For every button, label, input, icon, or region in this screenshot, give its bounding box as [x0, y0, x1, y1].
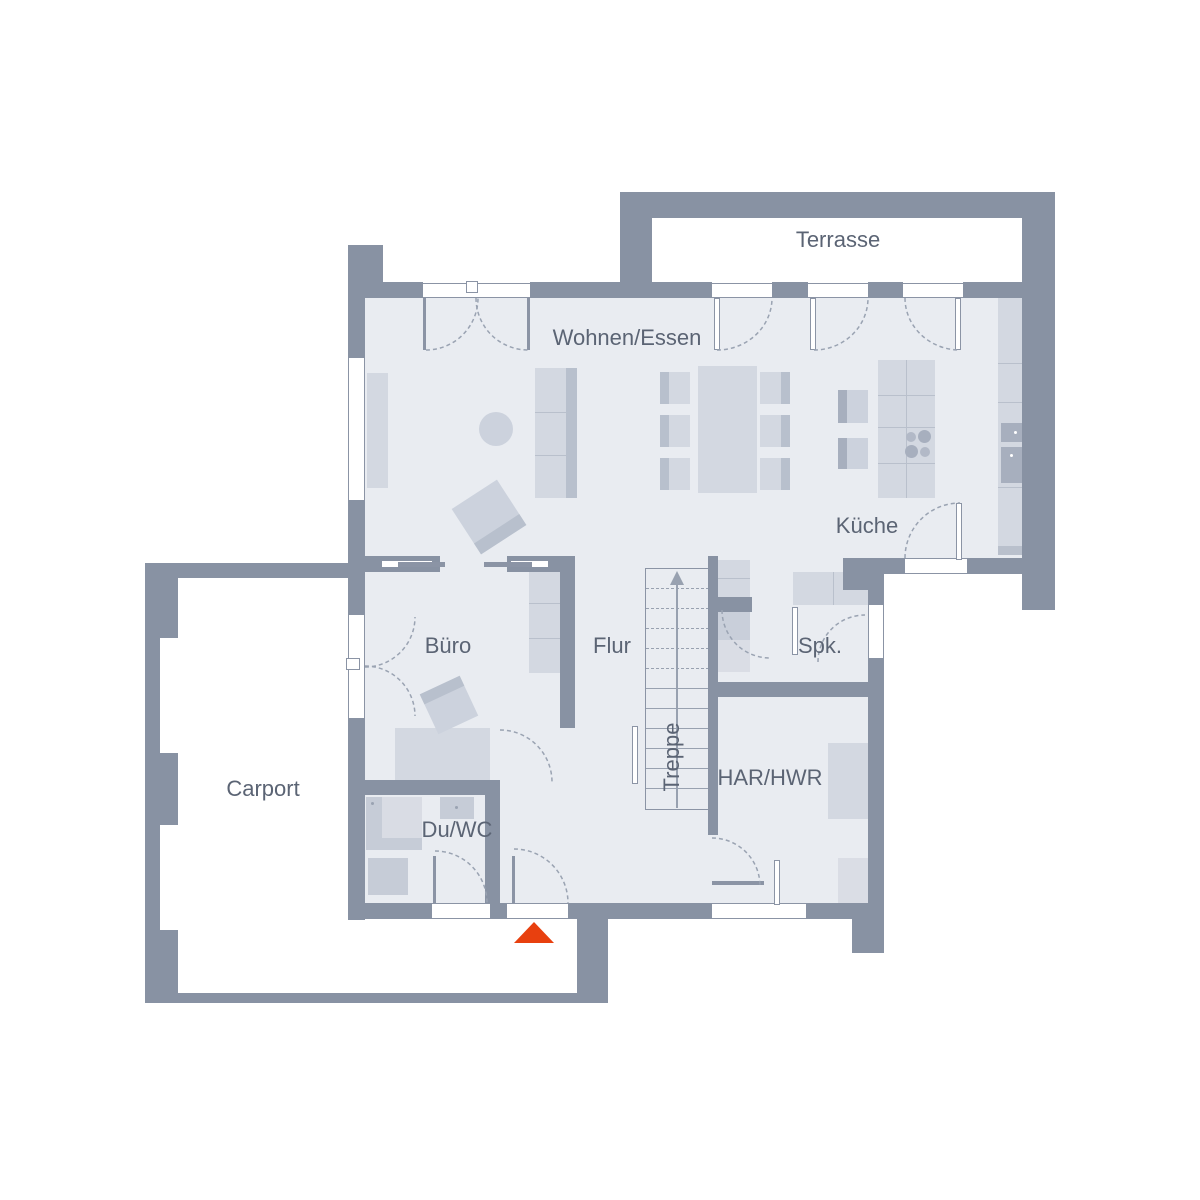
- window-living-west: [348, 358, 365, 500]
- terrace-door: [903, 283, 963, 298]
- door-swing-arc: [365, 666, 415, 716]
- room-label-wohnen-essen: Wohnen/Essen: [553, 325, 702, 351]
- wall-east-upper: [1022, 192, 1055, 610]
- toilet: [368, 858, 408, 895]
- wall-office-east: [560, 556, 575, 728]
- utility-door-post: [774, 860, 780, 905]
- utility-appliance-small: [838, 858, 868, 903]
- office-door-leaf: [632, 726, 638, 784]
- wall-duwc-north: [365, 780, 500, 795]
- door-swing-arc: [905, 503, 960, 558]
- office-desk: [395, 728, 490, 780]
- room-label-kueche: Küche: [836, 513, 898, 539]
- bar-stool: [838, 438, 868, 469]
- office-wardrobe: [529, 570, 562, 673]
- island-divider: [878, 395, 935, 396]
- wall-north: [772, 282, 808, 298]
- utility-appliance-large: [828, 743, 868, 819]
- sliding-door-leaf: [484, 562, 532, 567]
- door-swing-arc: [717, 298, 772, 350]
- wall-east-utility: [868, 658, 884, 919]
- wardrobe-divider: [529, 638, 562, 639]
- room-label-treppe: Treppe: [659, 723, 685, 792]
- terrace-wall-left: [620, 192, 652, 298]
- room-label-terrasse: Terrasse: [796, 227, 880, 253]
- stairs-up-arrow-icon: [670, 571, 684, 585]
- carport-wall-bottom: [145, 993, 608, 1003]
- dining-table: [698, 366, 757, 493]
- utility-door-window-south: [712, 903, 806, 919]
- carport-pillar: [145, 753, 178, 825]
- floor-plan-canvas: Terrasse Wohnen/Essen Küche Büro Flur Tr…: [0, 0, 1200, 1200]
- hall-closet: [718, 560, 750, 597]
- room-label-har-hwr: HAR/HWR: [717, 765, 822, 791]
- wall-corner-southeast: [852, 919, 884, 953]
- chair-backrest: [660, 372, 669, 404]
- washbasin: [440, 797, 474, 819]
- counter-divider: [998, 487, 1022, 488]
- room-label-spk: Spk.: [798, 633, 842, 659]
- sink-faucet: [1014, 431, 1017, 434]
- wall-utility-north: [708, 682, 884, 697]
- wall-north: [868, 282, 903, 298]
- wall-west: [348, 500, 365, 615]
- wall-west: [348, 298, 365, 358]
- entrance-door: [507, 903, 568, 919]
- chair-backrest: [660, 458, 669, 490]
- chair-backrest: [781, 458, 790, 490]
- door-swing-arc: [712, 838, 760, 886]
- carport-pillar: [145, 563, 178, 638]
- sofa-divider: [535, 412, 566, 413]
- counter-divider: [998, 402, 1022, 403]
- kitchen-island: [878, 360, 935, 498]
- cooktop-burner: [918, 430, 931, 443]
- kitchen-sink: [1001, 423, 1022, 442]
- wall-south: [568, 903, 712, 919]
- wall-north: [963, 282, 1022, 298]
- dining-chair: [760, 415, 790, 447]
- sofa-main-backrest: [566, 368, 577, 498]
- sofa-main-seat: [535, 368, 566, 498]
- sofa-divider: [535, 455, 566, 456]
- terrace-door: [712, 283, 772, 298]
- wall-stub-northwest: [348, 245, 383, 298]
- counter-end: [998, 546, 1022, 555]
- bar-stool: [838, 390, 868, 423]
- door-swing-arc: [814, 298, 868, 350]
- shower-drain: [371, 802, 374, 805]
- round-side-table: [479, 412, 513, 446]
- wall-south: [490, 903, 507, 919]
- counter-divider: [998, 363, 1022, 364]
- stool-edge: [838, 438, 847, 469]
- door-swing-arc: [905, 298, 960, 350]
- chair-backrest: [781, 372, 790, 404]
- sliding-door-leaf: [398, 562, 445, 567]
- room-label-flur: Flur: [593, 633, 631, 659]
- door-swing-arc: [722, 610, 770, 658]
- dining-chair: [760, 372, 790, 404]
- wall-east-pantry: [868, 558, 884, 605]
- duwc-door-south: [432, 903, 490, 919]
- wardrobe-divider: [529, 603, 562, 604]
- wall-south: [348, 903, 432, 919]
- kitchen-oven: [1001, 447, 1022, 483]
- room-label-carport: Carport: [226, 776, 299, 802]
- stool-edge: [838, 390, 847, 423]
- carport-pillar-right: [577, 919, 608, 1003]
- closet-divider: [718, 578, 750, 579]
- dining-chair: [660, 372, 690, 404]
- room-label-buero: Büro: [425, 633, 471, 659]
- cabinet-divider: [833, 572, 834, 605]
- chair-backrest: [660, 415, 669, 447]
- door-swing-arc: [500, 730, 552, 782]
- oven-knob: [1010, 454, 1013, 457]
- door-swing-arc: [514, 849, 568, 903]
- wall-west: [348, 718, 365, 920]
- door-swing-arc: [426, 298, 478, 350]
- kitchen-terrace-door: [905, 558, 967, 574]
- wall-kitchen-south: [967, 558, 1055, 574]
- chair-backrest: [781, 415, 790, 447]
- shower: [366, 797, 422, 850]
- terrace-wall-top: [620, 192, 1055, 218]
- dining-chair: [760, 458, 790, 490]
- cooktop-burner: [905, 445, 918, 458]
- cooktop-burner: [920, 447, 930, 457]
- entrance-arrow-icon: [514, 922, 554, 943]
- dining-chair: [660, 458, 690, 490]
- french-door-handle: [466, 281, 478, 293]
- door-swing-arc: [365, 617, 415, 667]
- cooktop-burner: [906, 432, 916, 442]
- french-window-handle: [346, 658, 360, 670]
- island-divider: [878, 427, 935, 428]
- window-pantry-east: [868, 605, 884, 658]
- wall-pantry-junction: [843, 574, 868, 590]
- door-swing-arc: [476, 298, 528, 350]
- door-swing-arc: [435, 851, 487, 903]
- dining-chair: [660, 415, 690, 447]
- island-divider: [878, 463, 935, 464]
- sofa-west: [367, 373, 388, 488]
- terrace-door: [808, 283, 868, 298]
- island-divider: [906, 360, 907, 498]
- basin-faucet: [455, 806, 458, 809]
- room-label-du-wc: Du/WC: [422, 817, 493, 843]
- shower-tray: [382, 797, 422, 838]
